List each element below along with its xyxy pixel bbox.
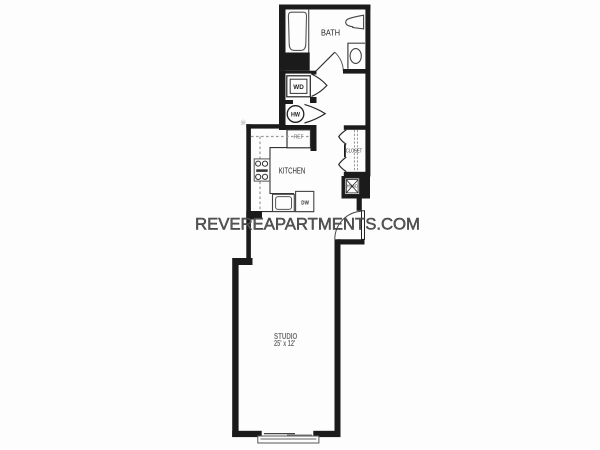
svg-text:HW: HW bbox=[291, 113, 300, 119]
svg-text:REVEREAPARTMENTS.COM: REVEREAPARTMENTS.COM bbox=[195, 215, 420, 234]
svg-text:REF: REF bbox=[294, 135, 304, 141]
svg-text:WD: WD bbox=[293, 85, 304, 91]
svg-text:KITCHEN: KITCHEN bbox=[279, 165, 306, 175]
svg-text:DW: DW bbox=[301, 200, 309, 206]
svg-text:HVAC: HVAC bbox=[347, 184, 359, 189]
svg-text:CLOSET: CLOSET bbox=[346, 149, 362, 155]
svg-text:25' x 12': 25' x 12' bbox=[274, 339, 295, 348]
svg-text:BATH: BATH bbox=[321, 28, 340, 38]
